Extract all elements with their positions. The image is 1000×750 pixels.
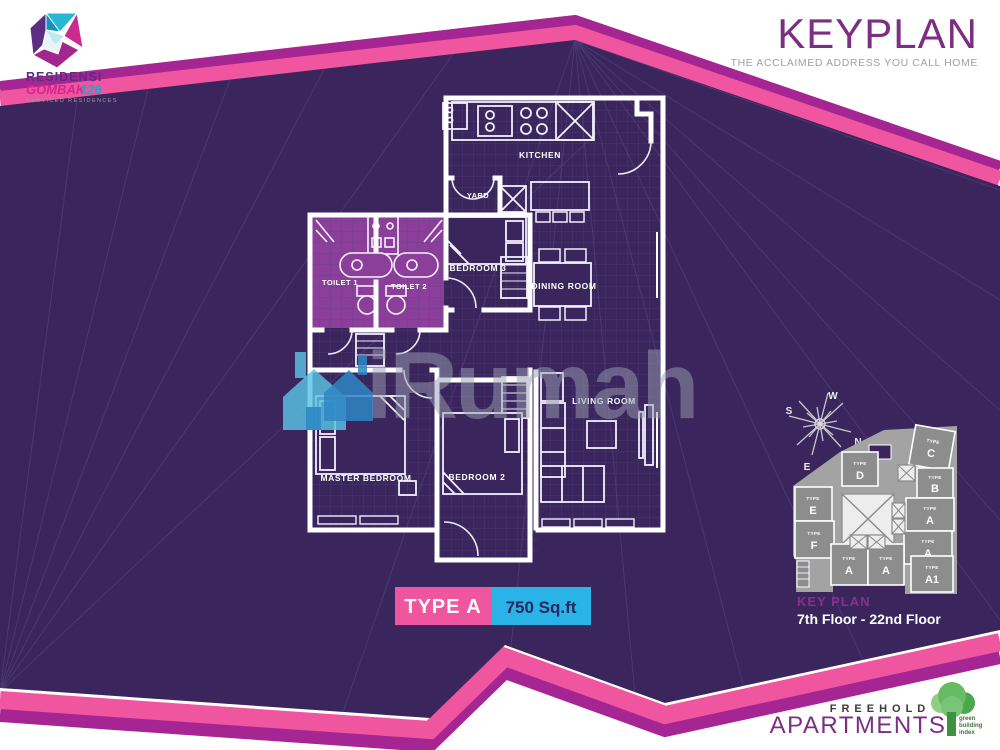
logo-number: 126 [80, 82, 102, 97]
svg-text:TYPE: TYPE [853, 461, 866, 466]
green-badge-line2: building [959, 723, 983, 729]
svg-text:TYPE: TYPE [842, 556, 855, 561]
minimap-unit-C: TYPE C [909, 425, 955, 471]
svg-text:TYPE: TYPE [879, 556, 892, 561]
compass-west: W [828, 391, 838, 402]
page-header: KEYPLAN THE ACCLAIMED ADDRESS YOU CALL H… [731, 10, 978, 69]
svg-text:A: A [926, 515, 934, 527]
keyplan-floors: 7th Floor - 22nd Floor [797, 611, 941, 627]
svg-text:A: A [845, 565, 853, 577]
svg-text:A: A [882, 565, 890, 577]
label-bedroom3: BEDROOM 3 [450, 263, 507, 273]
svg-text:TYPE: TYPE [928, 475, 941, 480]
label-toilet2: TOILET 2 [391, 282, 427, 291]
keyplan-label: KEY PLAN [797, 594, 871, 609]
minimap-unit-D: TYPE D [842, 452, 878, 486]
logo-tagline: SERVICED RESIDENCES [26, 98, 118, 104]
green-badge-line3: index [959, 730, 975, 736]
svg-text:E: E [809, 505, 816, 517]
minimap-unit-A-right1: TYPE A [906, 498, 954, 531]
badge-type-text: TYPE A [404, 596, 482, 618]
svg-text:D: D [856, 470, 864, 482]
label-master: MASTER BEDROOM [320, 473, 411, 483]
minimap-unit-F: TYPE F [795, 521, 834, 558]
keyplan-poster: KITCHEN YARD TOILET 1 TOILET 2 BEDROOM 3… [0, 0, 1000, 750]
svg-text:F: F [811, 540, 818, 552]
page-subtitle: THE ACCLAIMED ADDRESS YOU CALL HOME [731, 57, 978, 69]
compass-south: S [786, 406, 793, 417]
compass-east: E [804, 462, 811, 473]
gem-icon [30, 13, 83, 68]
svg-text:TYPE: TYPE [807, 531, 820, 536]
label-kitchen: KITCHEN [519, 150, 561, 160]
poster-canvas: KITCHEN YARD TOILET 1 TOILET 2 BEDROOM 3… [0, 0, 1000, 750]
label-bedroom2: BEDROOM 2 [449, 472, 506, 482]
svg-text:TYPE: TYPE [925, 565, 938, 570]
logo-name2: GOMBAK [26, 82, 87, 97]
footer-type: APARTMENTS [770, 712, 947, 739]
unit-badge: TYPE A 750 Sq.ft [395, 587, 591, 625]
minimap-unit-A1: TYPE A1 [911, 556, 953, 592]
page-title: KEYPLAN [777, 10, 978, 57]
label-dining: DINING ROOM [531, 281, 596, 291]
minimap-unit-B: TYPE B [917, 468, 953, 498]
minimap-unit-E: TYPE E [795, 487, 832, 521]
badge-area-text: 750 Sq.ft [506, 598, 577, 617]
svg-text:TYPE: TYPE [923, 506, 936, 511]
label-toilet1: TOILET 1 [322, 278, 358, 287]
svg-text:TYPE: TYPE [921, 539, 934, 544]
svg-text:TYPE: TYPE [806, 496, 819, 501]
minimap-unit-A-bottom2: TYPE A [868, 544, 904, 585]
svg-text:A1: A1 [925, 574, 939, 586]
svg-text:B: B [931, 483, 939, 495]
green-badge-line1: green [959, 716, 976, 722]
label-yard: YARD [467, 191, 489, 200]
minimap-unit-A-bottom1: TYPE A [831, 544, 868, 585]
watermark-text: iRumah [366, 333, 696, 439]
